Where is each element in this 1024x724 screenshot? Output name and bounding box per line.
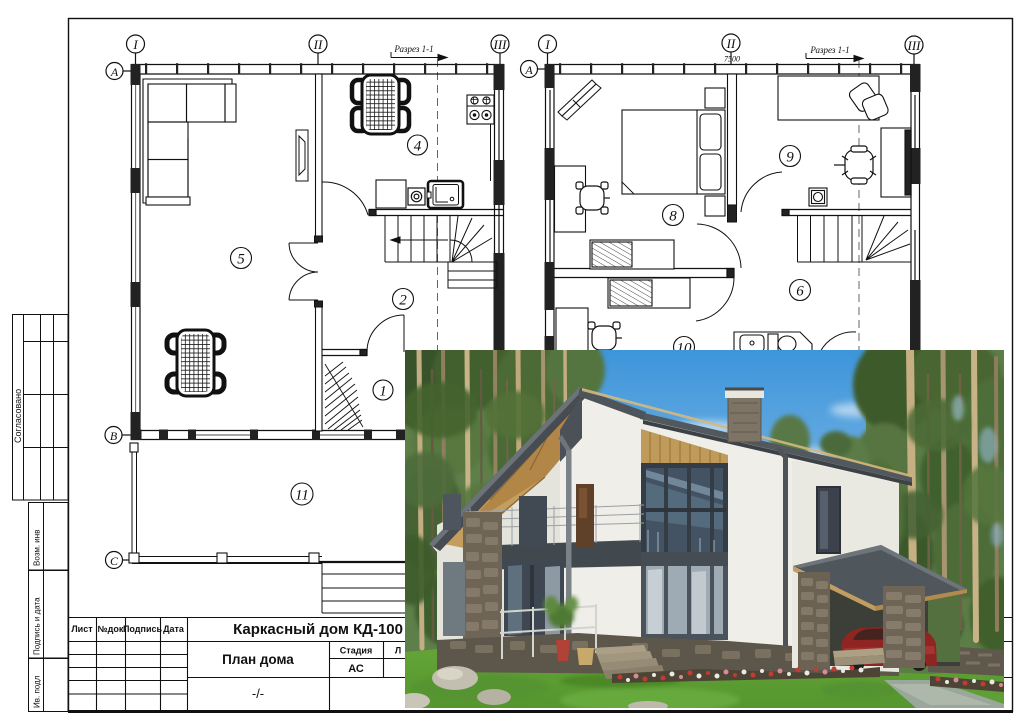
svg-text:A: A — [110, 65, 119, 79]
svg-text:A: A — [524, 63, 533, 77]
svg-text:8: 8 — [669, 209, 677, 225]
svg-text:9: 9 — [786, 150, 794, 166]
svg-text:I: I — [132, 37, 138, 52]
svg-text:Разрез 1-1: Разрез 1-1 — [809, 45, 849, 55]
svg-text:B: B — [110, 429, 118, 443]
svg-text:Лист: Лист — [71, 624, 93, 634]
svg-text:2: 2 — [399, 293, 407, 309]
svg-text:АС: АС — [348, 663, 364, 675]
svg-text:11: 11 — [295, 488, 309, 504]
svg-text:№док: №док — [98, 624, 124, 634]
svg-text:Дата: Дата — [163, 624, 185, 634]
svg-text:C: C — [110, 554, 119, 568]
svg-text:Л: Л — [395, 646, 401, 656]
svg-text:II: II — [313, 37, 323, 52]
svg-text:Подпись и дата: Подпись и дата — [33, 597, 42, 655]
svg-text:Согласовано: Согласовано — [13, 389, 23, 443]
svg-text:Стадия: Стадия — [340, 646, 372, 656]
svg-text:I: I — [544, 37, 550, 52]
svg-text:План дома: План дома — [222, 652, 294, 667]
svg-text:II: II — [726, 36, 736, 51]
svg-text:Подпись: Подпись — [123, 624, 163, 634]
svg-text:-/-: -/- — [252, 686, 264, 701]
svg-text:Ив. подл: Ив. подл — [33, 675, 42, 708]
svg-text:III: III — [493, 37, 508, 52]
svg-text:Разрез 1-1: Разрез 1-1 — [393, 44, 433, 54]
svg-text:III: III — [907, 38, 922, 53]
svg-text:6: 6 — [796, 284, 804, 300]
svg-text:5: 5 — [237, 252, 245, 268]
svg-text:Каркасный дом КД-100: Каркасный дом КД-100 — [233, 621, 403, 638]
svg-text:7500: 7500 — [724, 55, 740, 64]
svg-text:4: 4 — [414, 139, 422, 155]
svg-text:1: 1 — [379, 384, 387, 400]
svg-text:Возм. инв: Возм. инв — [33, 530, 42, 566]
